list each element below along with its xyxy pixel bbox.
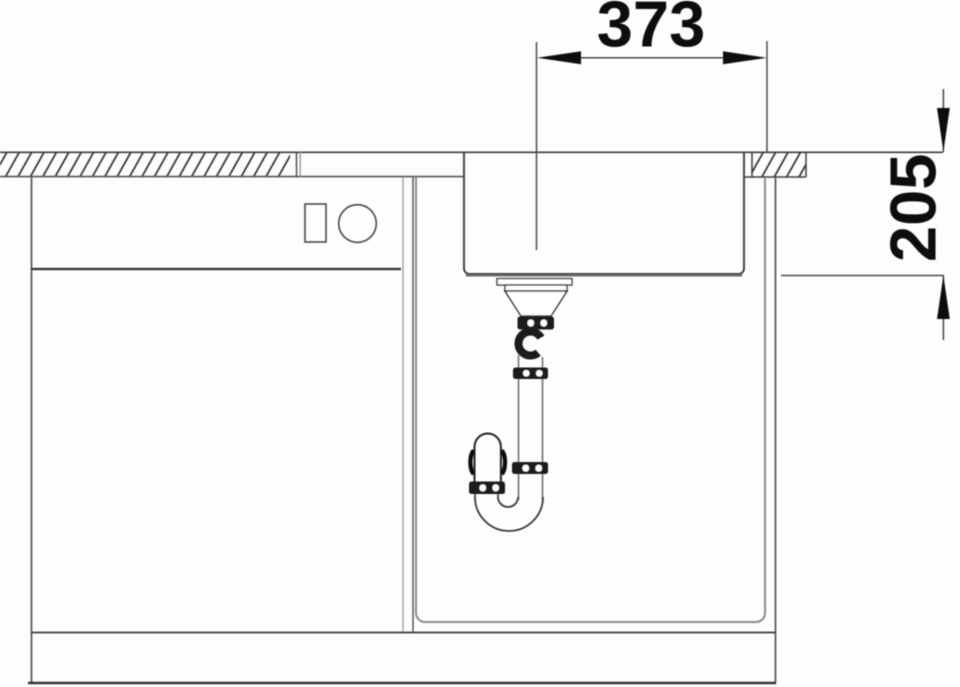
- svg-text:205: 205: [877, 154, 950, 262]
- svg-text:373: 373: [597, 0, 705, 61]
